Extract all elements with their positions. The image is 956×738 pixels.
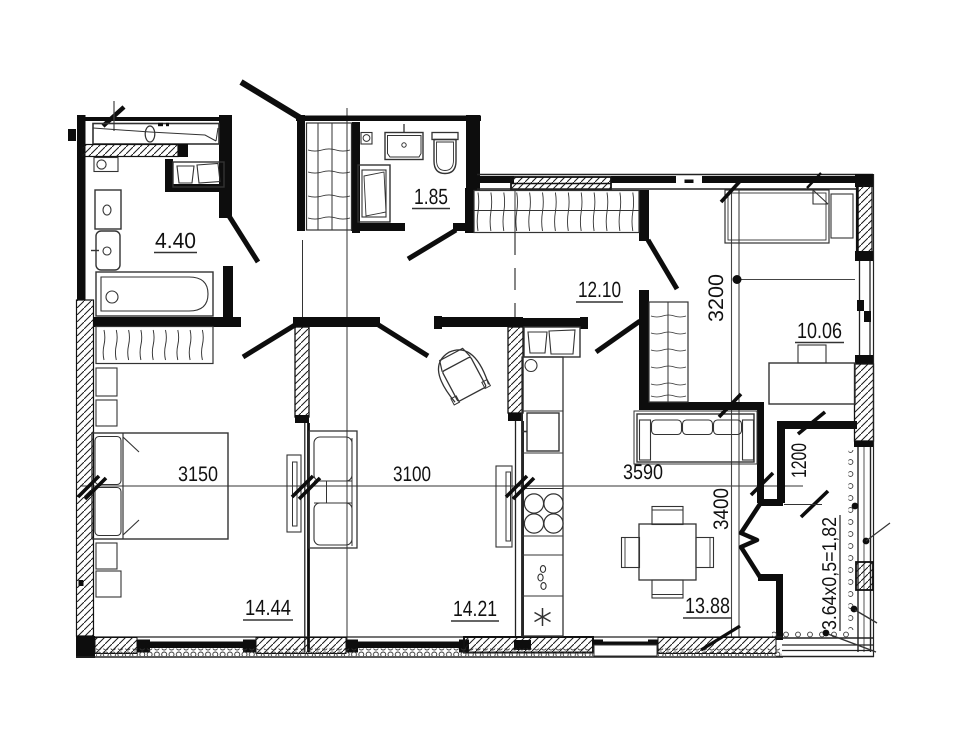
svg-text:3400: 3400 (710, 488, 733, 530)
svg-text:14.44: 14.44 (245, 595, 291, 620)
svg-text:3590: 3590 (623, 461, 663, 484)
svg-text:14.21: 14.21 (453, 596, 497, 621)
svg-text:12.10: 12.10 (578, 277, 621, 302)
svg-text:1.85: 1.85 (414, 184, 448, 209)
svg-text:1200: 1200 (788, 443, 811, 478)
svg-text:4.40: 4.40 (155, 228, 196, 253)
svg-text:3100: 3100 (393, 463, 431, 486)
svg-text:10.06: 10.06 (797, 318, 842, 343)
svg-text:3.64x0,5=1,82: 3.64x0,5=1,82 (819, 517, 841, 630)
svg-text:3150: 3150 (178, 463, 218, 486)
svg-text:13.88: 13.88 (685, 593, 730, 618)
svg-text:3200: 3200 (705, 274, 728, 322)
